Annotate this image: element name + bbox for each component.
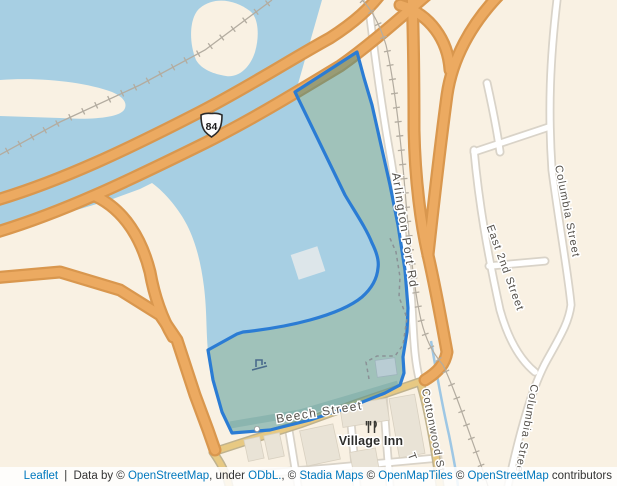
poi-label-village-inn: Village Inn bbox=[339, 434, 404, 448]
leaflet-link[interactable]: Leaflet bbox=[24, 470, 59, 482]
attribution-bar: Leaflet | Data by © OpenStreetMap, under… bbox=[0, 467, 617, 486]
island-north bbox=[191, 1, 258, 77]
leaflet-map[interactable]: 84 Arlington Port Rd Columbia Street Eas… bbox=[0, 0, 617, 486]
map-canvas[interactable]: 84 Arlington Port Rd Columbia Street Eas… bbox=[0, 0, 617, 486]
attribution-contributors: contributors bbox=[549, 470, 612, 482]
openstreetmap-link-1[interactable]: OpenStreetMap bbox=[128, 470, 209, 482]
openmaptiles-link[interactable]: OpenMapTiles bbox=[378, 470, 452, 482]
shield-route-number: 84 bbox=[206, 121, 218, 133]
stadia-maps-link[interactable]: Stadia Maps bbox=[299, 470, 363, 482]
attribution-under: , under bbox=[209, 470, 248, 482]
attribution-data-by: Data by © bbox=[73, 470, 128, 482]
port-building bbox=[375, 358, 397, 378]
attribution-copy-1: , © bbox=[281, 470, 299, 482]
odbl-link[interactable]: ODbL. bbox=[248, 470, 281, 482]
attribution-copy-2: © bbox=[363, 470, 378, 482]
openstreetmap-link-2[interactable]: OpenStreetMap bbox=[468, 470, 549, 482]
boundary-node-dot bbox=[254, 426, 259, 431]
attribution-copy-3: © bbox=[453, 470, 468, 482]
attribution-divider: | bbox=[58, 470, 73, 482]
